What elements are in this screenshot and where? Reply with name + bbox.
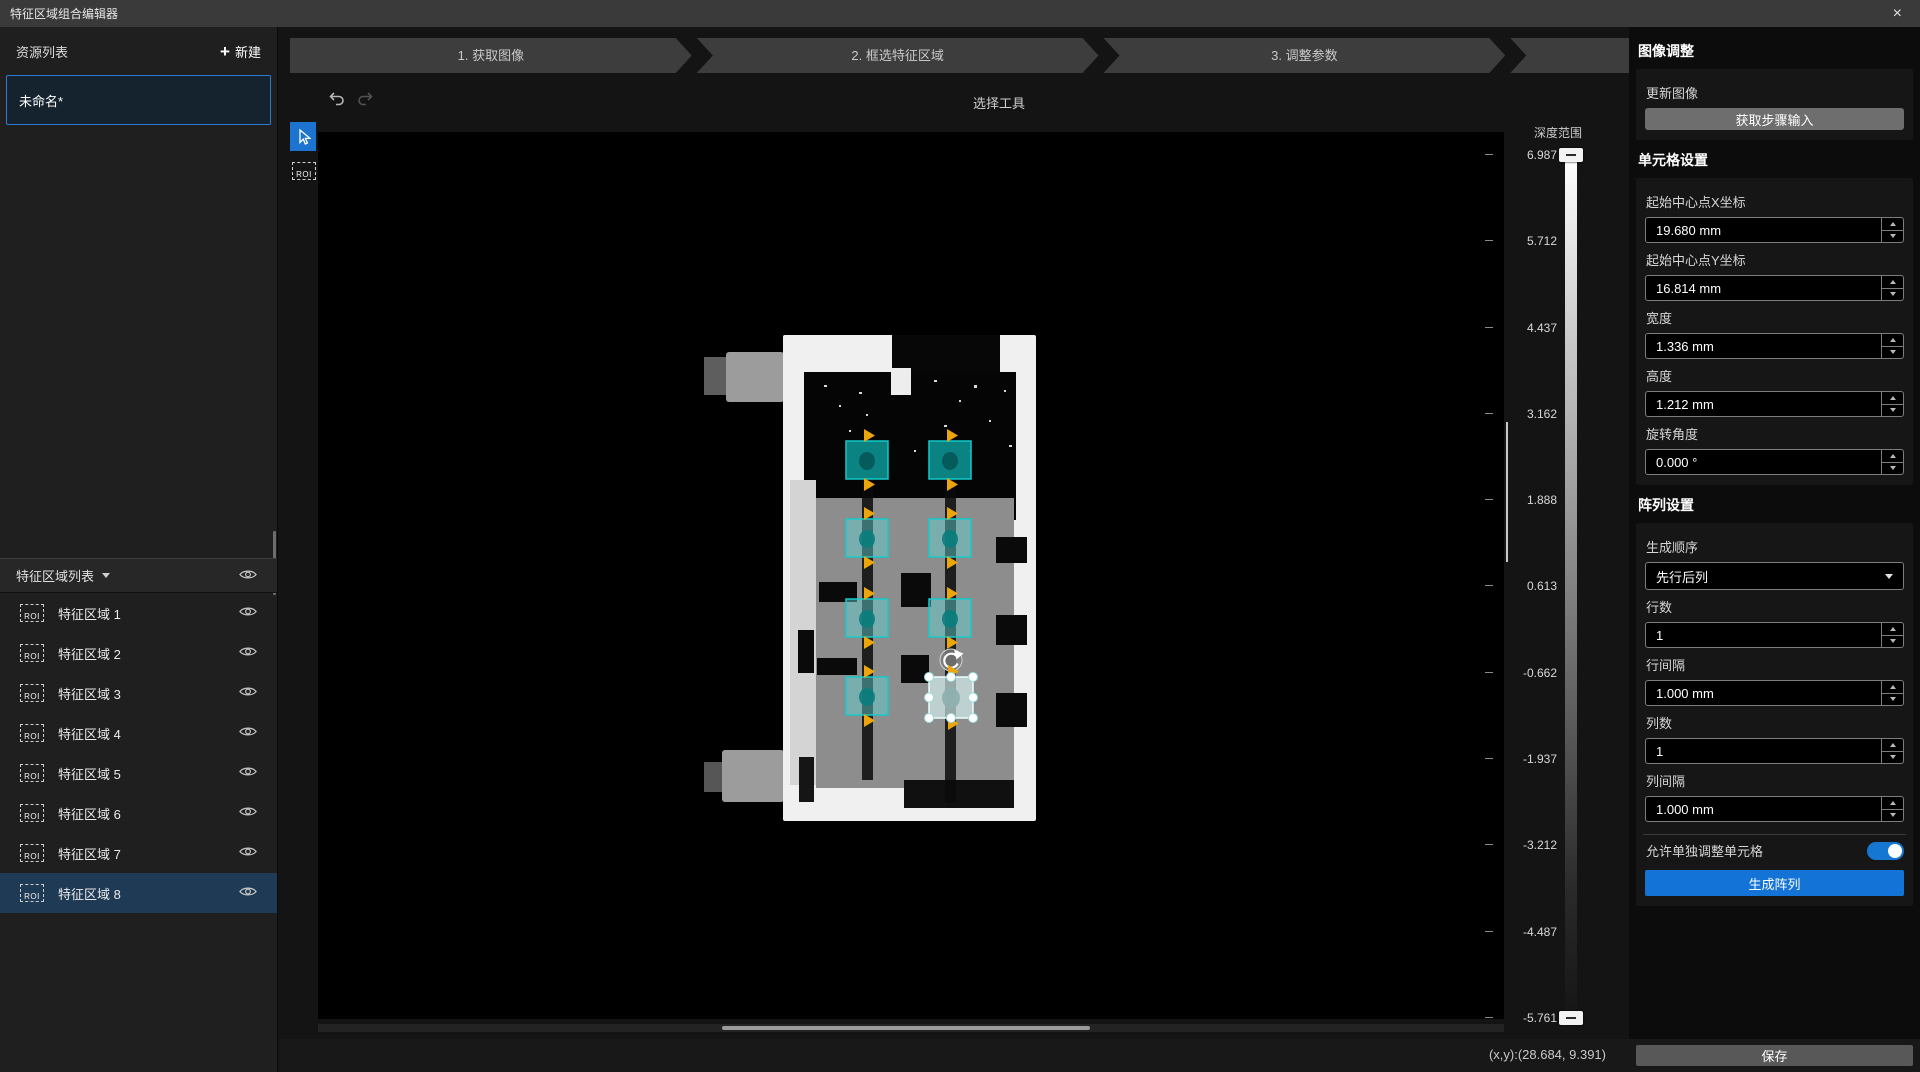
feature-region-editor-window: 特征区域组合编辑器 × 资源列表 + 新建 未命名* 特征区域列表 ROI — [0, 0, 1920, 1072]
titlebar: 特征区域组合编辑器 × — [0, 0, 1920, 27]
visibility-icon[interactable] — [239, 724, 257, 742]
roi-icon: ROI — [20, 644, 44, 662]
region-label: 特征区域 3 — [58, 684, 121, 703]
status-bar: (x,y):(28.684, 9.391) 保存 — [279, 1039, 1920, 1072]
rotation-angle-label: 旋转角度 — [1646, 424, 1903, 443]
region-list-item-2[interactable]: ROI 特征区域 2 — [0, 633, 277, 673]
image-adjust-section: 更新图像 获取步骤输入 — [1636, 69, 1913, 140]
image-canvas[interactable] — [318, 132, 1504, 1019]
spin-down-button[interactable] — [1882, 347, 1903, 359]
spin-down-button[interactable] — [1882, 752, 1903, 764]
image-adjust-heading: 图像调整 — [1638, 41, 1911, 61]
depth-range-title: 深度范围 — [1534, 124, 1582, 141]
spin-down-button[interactable] — [1882, 636, 1903, 648]
spinner — [1881, 797, 1903, 821]
visibility-icon[interactable] — [239, 764, 257, 782]
tick-dash — [1485, 240, 1493, 241]
scrollbar-thumb[interactable] — [722, 1026, 1090, 1030]
tick-dash — [1485, 499, 1493, 500]
feature-region-list-title: 特征区域列表 — [16, 566, 94, 585]
depth-tick: -3.212 — [1511, 837, 1557, 853]
spin-down-button[interactable] — [1882, 289, 1903, 301]
resource-name: 未命名* — [19, 91, 63, 110]
tick-dash — [1485, 1017, 1493, 1018]
chevron-down-icon — [1885, 574, 1893, 579]
spin-up-button[interactable] — [1882, 392, 1903, 405]
feature-region-list: 特征区域列表 ROI 特征区域 1 ROI 特征区域 2 ROI 特征区域 3 — [0, 558, 277, 913]
depth-tick: -4.487 — [1511, 924, 1557, 940]
feature-region-list-header[interactable]: 特征区域列表 — [0, 558, 277, 593]
minus-icon — [1566, 1017, 1576, 1019]
visibility-icon[interactable] — [239, 844, 257, 862]
start-center-x-label: 起始中心点X坐标 — [1646, 192, 1903, 211]
generate-array-button[interactable]: 生成阵列 — [1645, 870, 1904, 896]
region-list-item-3[interactable]: ROI 特征区域 3 — [0, 673, 277, 713]
spinner — [1881, 739, 1903, 763]
visibility-icon[interactable] — [239, 604, 257, 622]
cell-settings-heading: 单元格设置 — [1638, 150, 1911, 170]
spin-up-button[interactable] — [1882, 797, 1903, 810]
rotation-angle-input[interactable]: 0.000 ° — [1645, 449, 1904, 475]
pointcloud-blob — [722, 750, 784, 802]
spinner — [1881, 681, 1903, 705]
region-list-item-4[interactable]: ROI 特征区域 4 — [0, 713, 277, 753]
column-count-input[interactable]: 1 — [1645, 738, 1904, 764]
row-count-label: 行数 — [1646, 597, 1903, 616]
new-resource-button[interactable]: + 新建 — [220, 42, 261, 61]
tick-dash — [1485, 844, 1493, 845]
tick-dash — [1485, 154, 1493, 155]
save-button[interactable]: 保存 — [1636, 1045, 1913, 1066]
spin-up-button[interactable] — [1882, 681, 1903, 694]
depth-tick: -5.761 — [1511, 1010, 1557, 1026]
update-image-label: 更新图像 — [1646, 83, 1903, 102]
canvas-horizontal-scrollbar[interactable] — [318, 1024, 1504, 1032]
depth-range-slider[interactable] — [1565, 155, 1577, 1018]
region-list-item-6[interactable]: ROI 特征区域 6 — [0, 793, 277, 833]
depth-min-handle[interactable] — [1559, 1011, 1583, 1025]
visibility-icon[interactable] — [239, 644, 257, 662]
column-spacing-input[interactable]: 1.000 mm — [1645, 796, 1904, 822]
depth-tick: 3.162 — [1511, 406, 1557, 422]
roi-icon: ROI — [20, 764, 44, 782]
height-input[interactable]: 1.212 mm — [1645, 391, 1904, 417]
spin-up-button[interactable] — [1882, 450, 1903, 463]
resource-list-header: 资源列表 + 新建 — [0, 27, 277, 75]
tick-dash — [1485, 585, 1493, 586]
point-cloud-image — [704, 330, 1044, 830]
roi-icon: ROI — [20, 724, 44, 742]
roi-icon: ROI — [20, 604, 44, 622]
cell-settings-section: 起始中心点X坐标 19.680 mm 起始中心点Y坐标 16.814 mm 宽度… — [1636, 178, 1913, 485]
region-label: 特征区域 2 — [58, 644, 121, 663]
minus-icon — [1566, 154, 1576, 156]
current-tool-label: 选择工具 — [973, 93, 1025, 112]
spin-down-button[interactable] — [1882, 405, 1903, 417]
sidebar: 资源列表 + 新建 未命名* 特征区域列表 ROI 特征区域 1 — [0, 27, 278, 1072]
close-icon[interactable]: × — [1893, 6, 1902, 22]
spin-down-button[interactable] — [1882, 463, 1903, 475]
roi-icon: ROI — [20, 844, 44, 862]
new-resource-label: 新建 — [235, 42, 261, 61]
roi-box-8-selected[interactable] — [925, 665, 978, 730]
cursor-coordinates: (x,y):(28.684, 9.391) — [1489, 1047, 1606, 1062]
settings-panel: 图像调整 更新图像 获取步骤输入 单元格设置 起始中心点X坐标 19.680 m… — [1629, 27, 1920, 1039]
step-3-adjust-params[interactable]: 3. 调整参数 — [1104, 38, 1506, 73]
region-list-item-5[interactable]: ROI 特征区域 5 — [0, 753, 277, 793]
spinner — [1881, 450, 1903, 474]
depth-tick: 1.888 — [1511, 492, 1557, 508]
pointcloud-blob — [726, 352, 784, 402]
spinner — [1881, 392, 1903, 416]
depth-tick: 5.712 — [1511, 233, 1557, 249]
step-2-select-feature-region[interactable]: 2. 框选特征区域 — [697, 38, 1099, 73]
collapse-caret-icon — [102, 573, 110, 578]
start-center-y-label: 起始中心点Y坐标 — [1646, 250, 1903, 269]
step-1-acquire-image[interactable]: 1. 获取图像 — [290, 38, 692, 73]
array-settings-heading: 阵列设置 — [1638, 495, 1911, 515]
region-label: 特征区域 5 — [58, 764, 121, 783]
generate-order-label: 生成顺序 — [1646, 537, 1903, 556]
cursor-icon — [295, 128, 311, 146]
allow-individual-adjust-toggle[interactable] — [1867, 842, 1904, 860]
array-settings-section: 生成顺序 先行后列 行数 1 行间隔 1.000 mm 列数 1 列间隔 — [1636, 523, 1913, 906]
depth-tick: 0.613 — [1511, 578, 1557, 594]
region-list-item-7[interactable]: ROI 特征区域 7 — [0, 833, 277, 873]
region-list-item-8-selected[interactable]: ROI 特征区域 8 — [0, 873, 277, 913]
resource-item-selected[interactable]: 未命名* — [6, 75, 271, 125]
region-label: 特征区域 1 — [58, 604, 121, 623]
generate-order-dropdown[interactable]: 先行后列 — [1645, 562, 1904, 590]
row-count-input[interactable]: 1 — [1645, 622, 1904, 648]
spin-down-button[interactable] — [1882, 810, 1903, 822]
visibility-icon[interactable] — [239, 804, 257, 822]
region-label: 特征区域 7 — [58, 844, 121, 863]
width-input[interactable]: 1.336 mm — [1645, 333, 1904, 359]
region-list-item-1[interactable]: ROI 特征区域 1 — [0, 593, 277, 633]
undo-icon[interactable] — [327, 91, 347, 112]
column-spacing-label: 列间隔 — [1646, 771, 1903, 790]
spin-down-button[interactable] — [1882, 231, 1903, 243]
spinner — [1881, 276, 1903, 300]
tick-dash — [1485, 672, 1493, 673]
redo-icon[interactable] — [355, 91, 375, 112]
spin-up-button[interactable] — [1882, 739, 1903, 752]
width-label: 宽度 — [1646, 308, 1903, 327]
visibility-all-icon[interactable] — [239, 567, 257, 585]
spin-down-button[interactable] — [1882, 694, 1903, 706]
toggle-knob — [1888, 844, 1902, 858]
start-center-x-input[interactable]: 19.680 mm — [1645, 217, 1904, 243]
spin-up-button[interactable] — [1882, 218, 1903, 231]
region-label: 特征区域 4 — [58, 724, 121, 743]
roi-icon: ROI — [20, 684, 44, 702]
spinner — [1881, 623, 1903, 647]
plus-icon: + — [220, 43, 230, 60]
region-label: 特征区域 8 — [58, 884, 121, 903]
spinner — [1881, 334, 1903, 358]
roi-icon: ROI — [20, 804, 44, 822]
row-spacing-input[interactable]: 1.000 mm — [1645, 680, 1904, 706]
region-label: 特征区域 6 — [58, 804, 121, 823]
visibility-icon[interactable] — [239, 884, 257, 902]
column-count-label: 列数 — [1646, 713, 1903, 732]
spin-up-button[interactable] — [1882, 623, 1903, 636]
roi-icon: ROI — [20, 884, 44, 902]
select-tool-button[interactable] — [290, 122, 316, 151]
roi-tool-button[interactable]: ROI — [291, 158, 317, 184]
row-spacing-label: 行间隔 — [1646, 655, 1903, 674]
editor-center: 1. 获取图像 2. 框选特征区域 3. 调整参数 4. 生成特征区域阵列 选择… — [279, 27, 1629, 1072]
resource-list-title: 资源列表 — [16, 42, 68, 61]
height-label: 高度 — [1646, 366, 1903, 385]
spin-up-button[interactable] — [1882, 334, 1903, 347]
tick-dash — [1485, 931, 1493, 932]
depth-tick: 6.987 — [1511, 147, 1557, 163]
visibility-icon[interactable] — [239, 684, 257, 702]
tick-dash — [1485, 758, 1493, 759]
canvas-vertical-scrollbar[interactable] — [1506, 422, 1508, 562]
divider — [1643, 834, 1906, 835]
window-title: 特征区域组合编辑器 — [10, 5, 118, 22]
depth-tick: -0.662 — [1511, 665, 1557, 681]
depth-tick: -1.937 — [1511, 751, 1557, 767]
spinner — [1881, 218, 1903, 242]
tick-dash — [1485, 413, 1493, 414]
fetch-step-input-button[interactable]: 获取步骤输入 — [1645, 108, 1904, 130]
tick-dash — [1485, 327, 1493, 328]
depth-max-handle[interactable] — [1559, 148, 1583, 162]
spin-up-button[interactable] — [1882, 276, 1903, 289]
start-center-y-input[interactable]: 16.814 mm — [1645, 275, 1904, 301]
allow-individual-adjust-label: 允许单独调整单元格 — [1646, 841, 1763, 860]
depth-tick: 4.437 — [1511, 320, 1557, 336]
roi-icon: ROI — [292, 162, 316, 180]
